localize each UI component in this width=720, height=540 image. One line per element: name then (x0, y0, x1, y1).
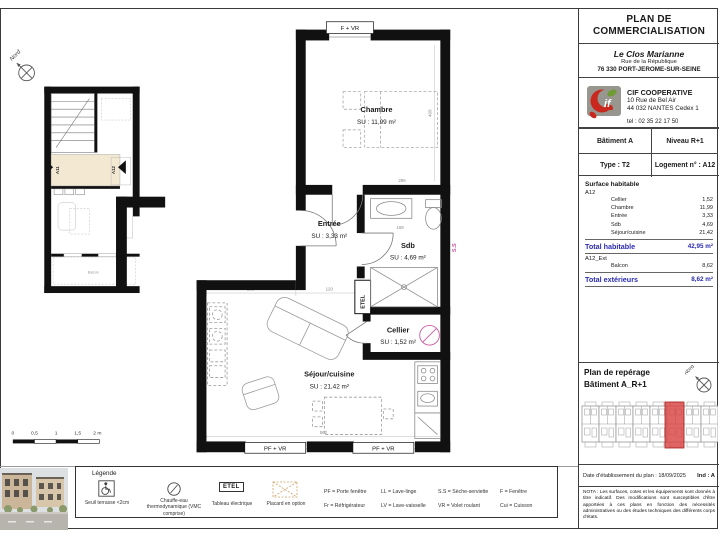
svg-text:296: 296 (398, 178, 406, 183)
stairs (51, 94, 94, 153)
legend-abbr-pf: PF = Porte fenêtre (324, 489, 367, 495)
svg-text:1: 1 (55, 431, 58, 437)
window-bottom-left-label: PF + VR (264, 446, 286, 452)
doors (301, 195, 393, 344)
legend-title: Légende (92, 470, 117, 477)
svg-text:0: 0 (11, 431, 14, 437)
label-a12: A12 (111, 165, 116, 174)
bathroom-fixtures (371, 199, 442, 307)
title-line1: PLAN DE (579, 14, 719, 26)
unit-niveau: Niveau R+1 (651, 129, 718, 153)
north-label: Nord (9, 49, 23, 63)
window-bottom-left: PF + VR (245, 441, 307, 453)
reperage-north-compass-icon: Nord (685, 365, 717, 397)
nota-block: NOTA : Les surfaces, cotes et les équipe… (579, 487, 719, 529)
surface-row: Sdb4,69 (585, 221, 713, 229)
shower (371, 267, 438, 306)
highlighted-unit (665, 402, 684, 448)
legend-chauffe-label: Chauffe-eau thermodynamique (VMC compris… (144, 498, 204, 517)
legend-etel-symbol: ETEL (219, 482, 244, 492)
document-title: PLAN DE COMMERCIALISATION (579, 8, 719, 44)
window-bottom-right: PF + VR (353, 441, 415, 453)
water-heater-legend-icon (166, 481, 182, 497)
reperage-strip (581, 401, 718, 451)
room-chambre-name: Chambre (361, 105, 393, 114)
landing (51, 154, 120, 185)
label-a11: A11 (55, 166, 60, 174)
program-city: 76 330 PORT-JEROME-SUR-SEINE (579, 66, 719, 74)
room-sejour-area: SU : 21,42 m² (310, 383, 349, 390)
toilet (426, 200, 442, 229)
overview-balcon-label: Balcon (88, 270, 99, 274)
svg-text:1,5: 1,5 (74, 431, 81, 437)
optional-closet (207, 303, 227, 386)
legend-abbr-f: F = Fenêtre (500, 489, 527, 495)
etel-label: ETEL (361, 294, 367, 308)
legend-abbr-vr: VR = Volet roulant (438, 503, 480, 509)
unit-info-table: Bâtiment A Niveau R+1 Type : T2 Logement… (579, 128, 719, 176)
closet-option-icon (272, 481, 298, 498)
etel-box: ETEL (355, 280, 371, 313)
company-block: if CIF COOPERATIVE 10 Rue de Bel Air 44 … (579, 78, 719, 128)
legend-box: Légende Seuil terrasse <2cm Chauffe-eau … (75, 466, 558, 518)
towel-dryer-label: S.S (452, 243, 458, 252)
room-entree-name: Entrée (318, 219, 341, 228)
legend-seuil-label: Seuil terrasse <2cm (77, 500, 137, 506)
surface-row: Entrée3,33 (585, 212, 713, 220)
scale-bar: 0 0,5 1 1,5 2 m (11, 431, 101, 444)
room-cellier-name: Cellier (387, 325, 410, 334)
date-label: Date d'établissement du plan : 18/09/202… (583, 473, 686, 479)
total-habitable-row: Total habitable 42,95 m² (585, 239, 713, 254)
company-city: 44 032 NANTES Cedex 1 (627, 105, 699, 113)
svg-text:408: 408 (428, 109, 433, 117)
svg-text:0,5: 0,5 (31, 431, 38, 437)
legend-abbr-cui: Cui = Cuisson (500, 503, 532, 509)
window-top-label: F + VR (341, 26, 359, 32)
unit-batiment: Bâtiment A (579, 129, 651, 153)
title-block-panel: PLAN DE COMMERCIALISATION Le Clos Marian… (579, 8, 719, 529)
company-tel: tel : 02 35 22 17 50 (627, 118, 699, 126)
reperage-title-line1: Plan de repérage (584, 368, 650, 377)
wheelchair-icon (98, 480, 115, 497)
total-exterieurs-row: Total extérieurs 8,62 m² (585, 272, 713, 287)
plan-sheet: Nord A11 (0, 0, 720, 540)
svg-text:2 m: 2 m (93, 431, 101, 437)
window-top: F + VR (326, 22, 373, 41)
surface-row: Cellier1,52 (585, 196, 713, 204)
room-sdb-name: Sdb (401, 241, 415, 250)
surface-row: Séjour/cuisine21,42 (585, 229, 713, 237)
title-line2: COMMERCIALISATION (579, 26, 719, 38)
water-heater-icon (420, 325, 440, 345)
armchair (240, 375, 280, 411)
program-block: Le Clos Marianne Rue de la République 76… (579, 44, 719, 78)
index-label: Ind : A (697, 473, 715, 479)
svg-text:120: 120 (326, 287, 334, 292)
legend-placard-label: Placard en option (264, 501, 308, 507)
room-sejour-name: Séjour/cuisine (304, 370, 354, 379)
date-row: Date d'établissement du plan : 18/09/202… (579, 465, 719, 487)
north-compass-icon (17, 63, 35, 81)
sofa (264, 294, 351, 362)
legend-abbr-ss: S.S = Sèche-serviette (438, 489, 488, 495)
surface-ext-row: Balcon8,62 (585, 262, 713, 270)
cif-logo: if (585, 86, 623, 120)
program-street: Rue de la République (579, 59, 719, 66)
reperage-title-line2: Bâtiment A_R+1 (584, 380, 647, 389)
washbasin (371, 199, 412, 219)
floorplan-drawing: Nord A11 (0, 8, 578, 466)
svg-text:169: 169 (396, 225, 404, 230)
window-bottom-right-label: PF + VR (372, 446, 394, 452)
legend-etel-label: Tableau électrique (202, 501, 262, 507)
company-street: 10 Rue de Bel Air (627, 97, 699, 105)
nota-text: NOTA : Les surfaces, cotes et les équipe… (583, 490, 715, 522)
project-photo (0, 468, 68, 530)
svg-text:Nord: Nord (685, 365, 697, 376)
room-chambre-area: SU : 11,99 m² (357, 119, 396, 126)
surface-section-title: Surface habitable (585, 181, 713, 188)
kitchen-counter (415, 362, 441, 439)
unit-logement: Logement n° : A12 (651, 153, 718, 177)
program-name: Le Clos Marianne (579, 49, 719, 59)
legend-abbr-lv: LV = Lave-vaisselle (381, 503, 426, 509)
surface-row: Chambre11,99 (585, 204, 713, 212)
unit-type: Type : T2 (579, 153, 651, 177)
dining-table (313, 397, 394, 434)
legend-abbr-fr: Fr = Réfrigérateur (324, 503, 365, 509)
legend-abbr-ll: LL = Lave-linge (381, 489, 416, 495)
room-cellier-area: SU : 1,52 m² (380, 339, 416, 346)
room-entree-area: SU : 3,33 m² (311, 233, 347, 240)
surface-table: Surface habitable A12 Cellier1,52 Chambr… (579, 176, 719, 362)
reperage-section: Plan de repérage Bâtiment A_R+1 Nord (579, 362, 719, 465)
room-sdb-area: SU : 4,69 m² (390, 255, 426, 262)
company-name: CIF COOPERATIVE (627, 88, 699, 97)
